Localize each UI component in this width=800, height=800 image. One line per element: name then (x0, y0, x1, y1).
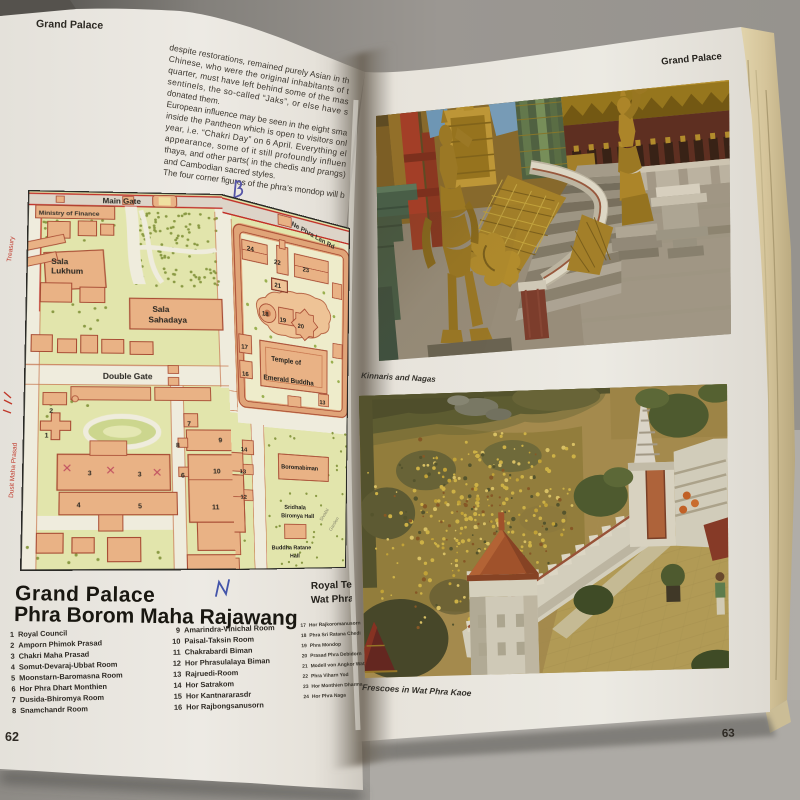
svg-text:Hall: Hall (290, 552, 300, 559)
svg-text:19: 19 (301, 643, 307, 649)
svg-text:23: 23 (303, 684, 309, 690)
svg-text:20: 20 (302, 653, 308, 659)
svg-text:Snamchandr Room: Snamchandr Room (20, 704, 88, 715)
svg-text:Ministry of Finance: Ministry of Finance (39, 210, 100, 218)
svg-text:Double Gate: Double Gate (103, 371, 153, 381)
svg-text:13: 13 (319, 399, 325, 406)
svg-text:17: 17 (300, 623, 306, 629)
svg-text:2: 2 (10, 641, 14, 650)
svg-text:14: 14 (173, 681, 182, 690)
svg-text:24: 24 (303, 694, 309, 700)
svg-text:Biromya Hall: Biromya Hall (281, 512, 314, 519)
svg-text:Rajruedi-Room: Rajruedi-Room (185, 668, 239, 678)
svg-text:11: 11 (173, 648, 181, 657)
svg-text:Main Gate: Main Gate (103, 196, 141, 205)
svg-text:8: 8 (12, 706, 16, 715)
svg-text:13: 13 (240, 468, 247, 475)
svg-text:18: 18 (301, 633, 307, 639)
svg-text:14: 14 (241, 446, 248, 453)
svg-text:19: 19 (280, 316, 287, 324)
svg-text:17: 17 (241, 343, 248, 351)
svg-text:Sala: Sala (51, 257, 69, 266)
svg-text:23: 23 (303, 265, 310, 274)
svg-text:62: 62 (5, 730, 19, 744)
svg-text:16: 16 (174, 703, 182, 712)
svg-text:6: 6 (11, 684, 15, 693)
svg-text:Royal Council: Royal Council (18, 628, 68, 638)
svg-text:13: 13 (173, 670, 181, 679)
svg-text:Hor Satrakom: Hor Satrakom (185, 679, 234, 689)
svg-text:12: 12 (240, 494, 247, 501)
svg-text:3: 3 (10, 652, 14, 661)
svg-text:Sala: Sala (152, 305, 170, 314)
svg-text:24: 24 (247, 244, 255, 253)
svg-text:10: 10 (172, 637, 180, 646)
svg-text:21: 21 (302, 663, 308, 669)
svg-text:Chakrabardi Biman: Chakrabardi Biman (185, 646, 253, 657)
svg-text:22: 22 (274, 258, 281, 267)
svg-text:18: 18 (262, 310, 269, 319)
svg-text:5: 5 (11, 673, 15, 682)
svg-text:21: 21 (274, 281, 281, 290)
svg-text:20: 20 (298, 322, 305, 330)
svg-text:11: 11 (212, 505, 220, 512)
svg-text:16: 16 (242, 370, 249, 378)
svg-text:Lukhum: Lukhum (51, 266, 84, 276)
svg-text:9: 9 (176, 626, 180, 635)
svg-text:15: 15 (174, 692, 182, 701)
svg-text:12: 12 (173, 659, 181, 668)
svg-text:Sahadaya: Sahadaya (148, 315, 188, 325)
svg-text:63: 63 (722, 728, 735, 740)
svg-text:Sridhala: Sridhala (284, 503, 306, 510)
svg-text:1: 1 (10, 630, 14, 639)
svg-text:Hor Kantnararasdr: Hor Kantnararasdr (186, 690, 252, 701)
svg-text:Grand Palace: Grand Palace (36, 18, 104, 32)
svg-text:22: 22 (303, 674, 309, 680)
svg-text:Buddha Ratane: Buddha Ratane (272, 544, 312, 551)
svg-text:10: 10 (213, 469, 222, 476)
svg-text:7: 7 (12, 695, 16, 704)
